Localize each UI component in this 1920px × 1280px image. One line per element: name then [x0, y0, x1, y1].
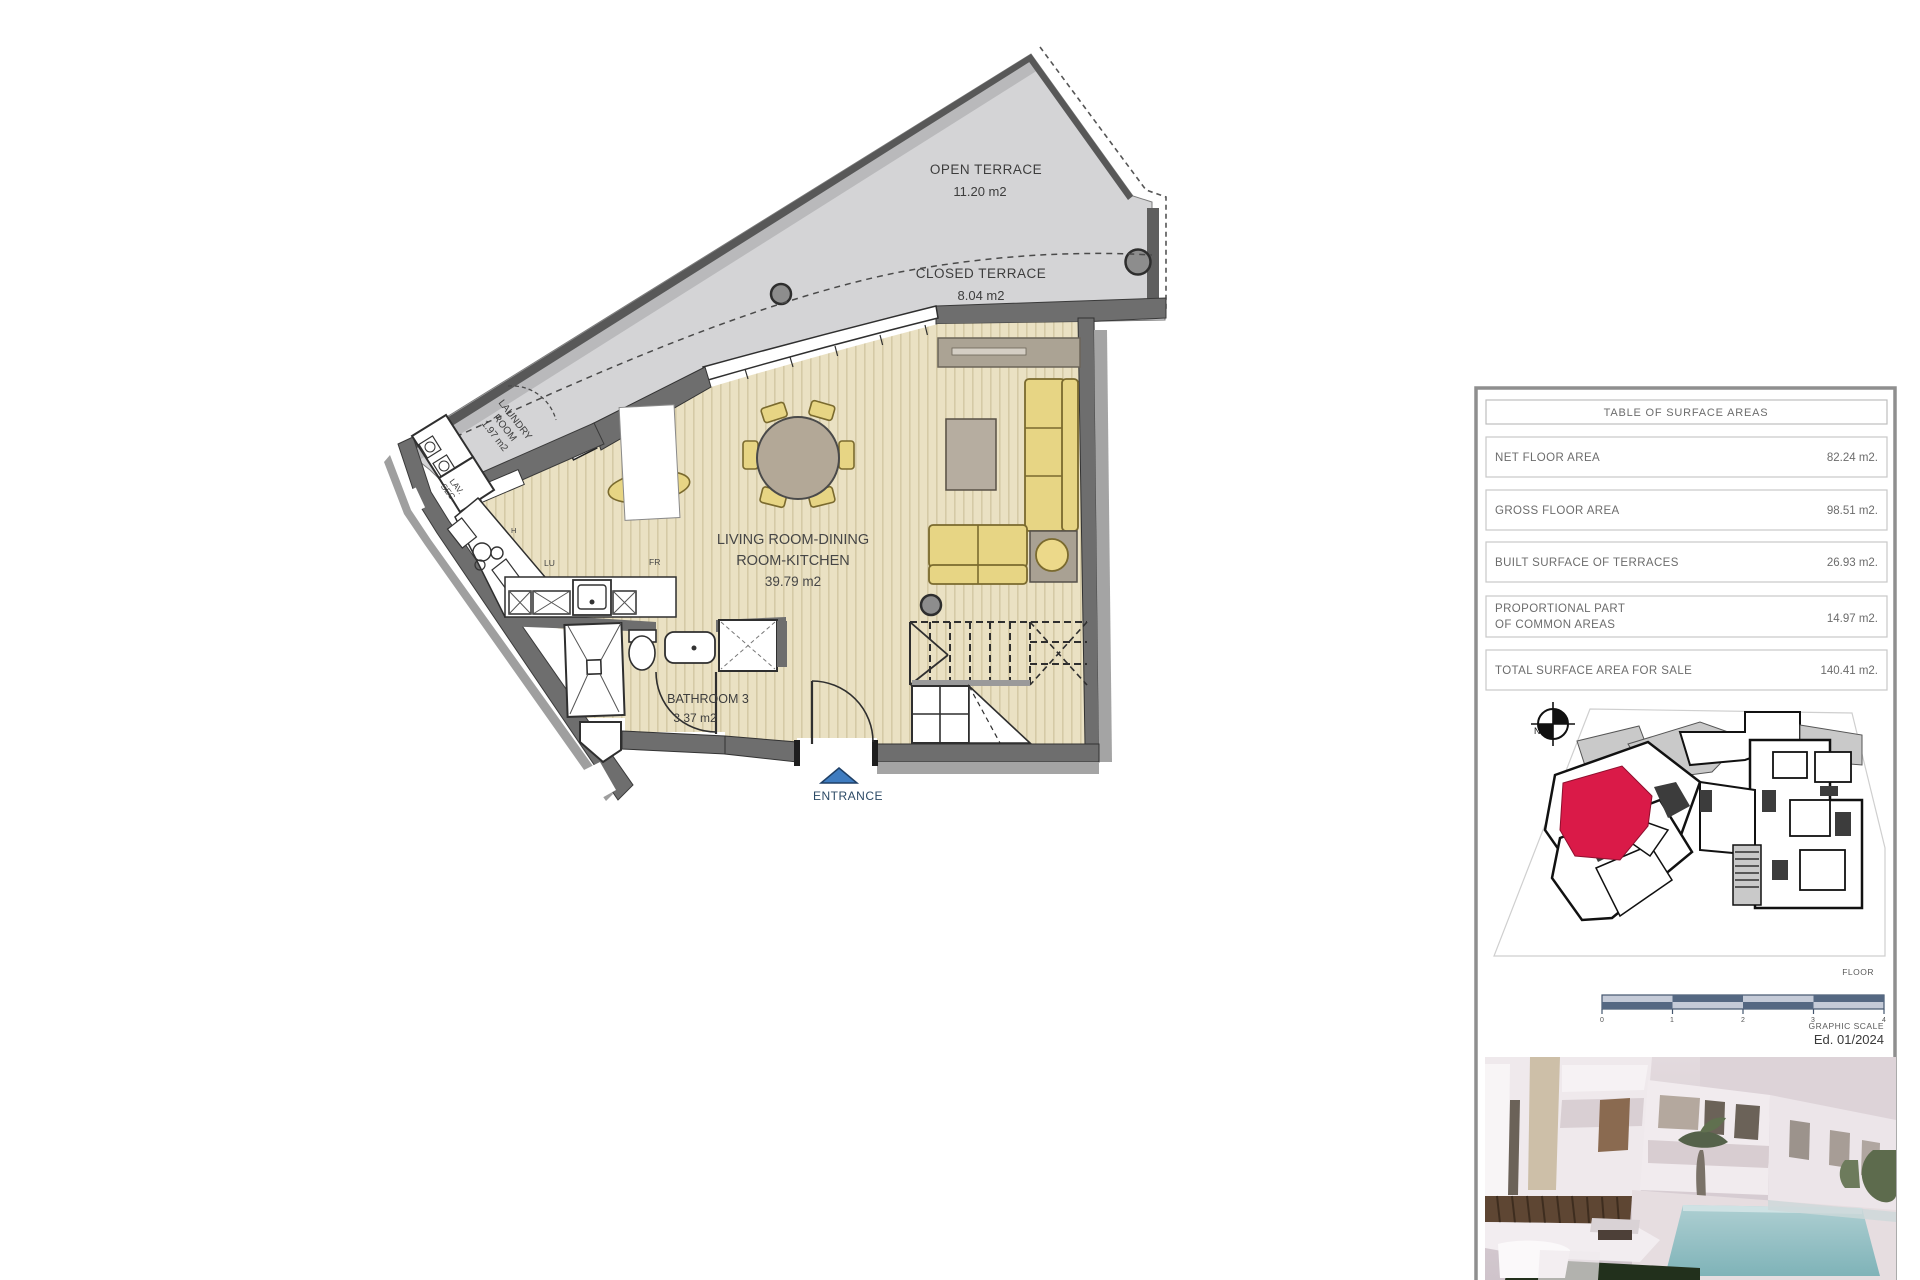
svg-text:140.41 m2.: 140.41 m2. [1820, 665, 1878, 677]
svg-text:ROOM-KITCHEN: ROOM-KITCHEN [736, 553, 850, 569]
svg-text:NET FLOOR AREA: NET FLOOR AREA [1495, 452, 1600, 464]
svg-text:FLOOR: FLOOR [1842, 967, 1874, 977]
svg-text:FR: FR [649, 557, 660, 567]
svg-text:OPEN TERRACE: OPEN TERRACE [930, 162, 1042, 177]
svg-text:1: 1 [1670, 1017, 1674, 1024]
svg-text:TABLE OF SURFACE AREAS: TABLE OF SURFACE AREAS [1604, 407, 1769, 419]
svg-text:11.20 m2: 11.20 m2 [953, 184, 1006, 199]
svg-text:0: 0 [1600, 1017, 1604, 1024]
svg-text:3.37 m2: 3.37 m2 [673, 711, 717, 725]
svg-text:LIVING ROOM-DINING: LIVING ROOM-DINING [717, 532, 869, 548]
svg-text:GRAPHIC SCALE: GRAPHIC SCALE [1809, 1021, 1884, 1031]
svg-text:2: 2 [1741, 1017, 1745, 1024]
svg-text:26.93 m2.: 26.93 m2. [1827, 557, 1878, 569]
svg-text:14.97 m2.: 14.97 m2. [1827, 613, 1878, 625]
svg-text:98.51 m2.: 98.51 m2. [1827, 505, 1878, 517]
svg-text:GROSS FLOOR AREA: GROSS FLOOR AREA [1495, 505, 1620, 517]
svg-text:N: N [1534, 726, 1541, 736]
svg-text:TOTAL SURFACE AREA FOR SALE: TOTAL SURFACE AREA FOR SALE [1495, 665, 1692, 677]
svg-text:PROPORTIONAL PART: PROPORTIONAL PART [1495, 603, 1625, 615]
svg-text:82.24 m2.: 82.24 m2. [1827, 452, 1878, 464]
svg-text:OF COMMON AREAS: OF COMMON AREAS [1495, 619, 1615, 631]
svg-text:ENTRANCE: ENTRANCE [813, 789, 883, 803]
svg-text:Ed. 01/2024: Ed. 01/2024 [1814, 1032, 1884, 1047]
svg-text:CLOSED TERRACE: CLOSED TERRACE [916, 266, 1047, 281]
svg-text:8.04 m2: 8.04 m2 [958, 288, 1005, 303]
svg-text:BATHROOM 3: BATHROOM 3 [667, 692, 749, 706]
svg-text:BUILT SURFACE OF TERRACES: BUILT SURFACE OF TERRACES [1495, 557, 1679, 569]
svg-text:H: H [511, 526, 516, 535]
svg-text:LU: LU [544, 558, 555, 568]
svg-text:39.79 m2: 39.79 m2 [765, 574, 821, 589]
